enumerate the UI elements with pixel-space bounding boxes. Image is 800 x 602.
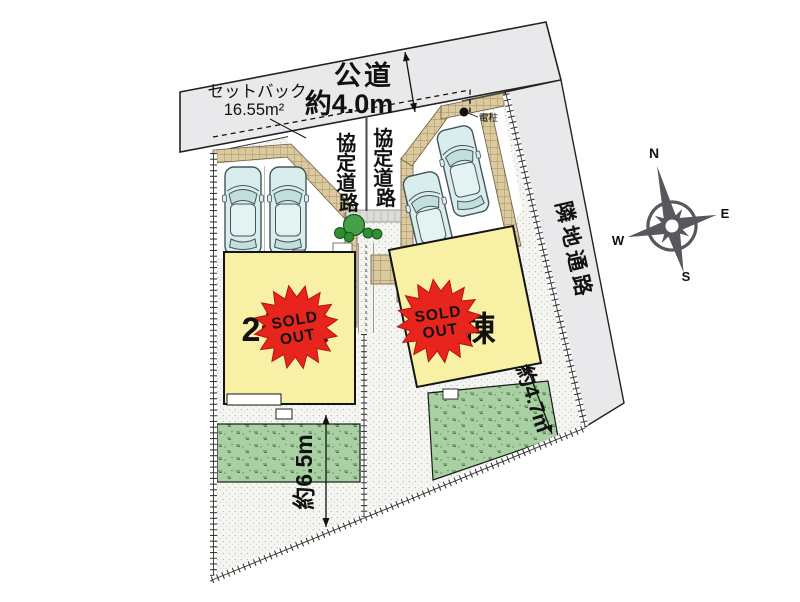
utility-pole-label: 電柱 [479, 112, 499, 124]
car-icon [223, 167, 264, 255]
site-plan-figure: 2号棟 1号棟 SOLD OUT SOLD OUT セットバック 16.55m²… [0, 0, 800, 602]
agreement-road-label-right: 協 定 道 路 [373, 127, 399, 210]
road-width-label: 約4.0m [305, 88, 394, 119]
compass-n-label: N [649, 145, 659, 161]
compass-rose: N E W S [612, 145, 730, 284]
car-icon [268, 167, 309, 255]
garden-left [217, 424, 360, 482]
compass-e-label: E [721, 206, 730, 221]
setback-label: セットバック [208, 82, 307, 101]
compass-w-label: W [612, 233, 625, 248]
setback-area: 16.55m² [224, 101, 285, 119]
utility-box [443, 389, 458, 399]
road-name-label: 公道 [334, 60, 394, 91]
site-plan-page: 2号棟 1号棟 SOLD OUT SOLD OUT セットバック 16.55m²… [0, 0, 800, 602]
compass-s-label: S [682, 269, 691, 284]
agreement-road-label-left: 協 定 道 路 [336, 132, 362, 215]
svg-text:約6.5m: 約6.5m [291, 434, 317, 509]
